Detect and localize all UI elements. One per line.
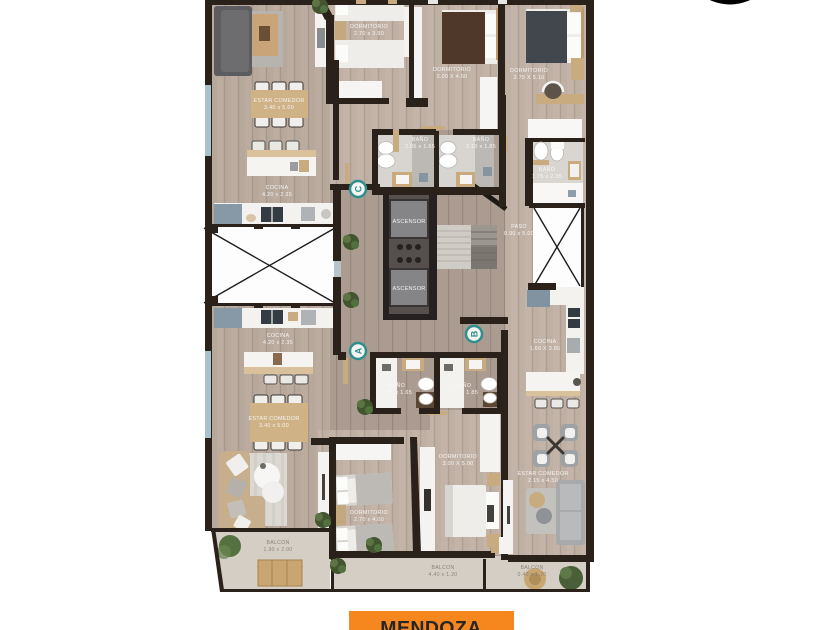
svg-text:BAÑO: BAÑO: [412, 136, 428, 143]
svg-text:1.75 x 2.35: 1.75 x 2.35: [532, 174, 562, 180]
svg-text:4.20 x 2.35: 4.20 x 2.35: [263, 340, 293, 346]
svg-text:BALCON: BALCON: [266, 540, 289, 546]
svg-text:DORMITORIO: DORMITORIO: [350, 510, 388, 516]
svg-text:ESTAR COMEDOR: ESTAR COMEDOR: [253, 98, 304, 104]
svg-text:B: B: [470, 330, 480, 337]
svg-text:ASCENSOR: ASCENSOR: [393, 286, 426, 292]
svg-text:0.90 x 5.00: 0.90 x 5.00: [504, 231, 534, 237]
svg-text:C: C: [354, 185, 364, 192]
svg-text:4.20 x 2.35: 4.20 x 2.35: [262, 192, 292, 198]
svg-text:COCINA: COCINA: [534, 339, 557, 345]
svg-text:DORMITORIO: DORMITORIO: [510, 68, 548, 74]
svg-text:BAÑO: BAÑO: [539, 166, 555, 173]
svg-text:2.70 x 3.90: 2.70 x 3.90: [354, 31, 384, 37]
svg-text:DORMITORIO: DORMITORIO: [350, 24, 388, 30]
svg-text:ESTAR COMEDOR: ESTAR COMEDOR: [517, 471, 568, 477]
svg-text:ASCENSOR: ASCENSOR: [393, 219, 426, 225]
svg-text:4.40 x 1.20: 4.40 x 1.20: [429, 572, 458, 578]
svg-text:3.00 X 4.60: 3.00 X 4.60: [437, 74, 468, 80]
svg-text:1.90 x 2.00: 1.90 x 2.00: [264, 547, 293, 553]
svg-text:MENDOZA: MENDOZA: [380, 618, 481, 630]
svg-text:0.40 x 1.20: 0.40 x 1.20: [518, 572, 547, 578]
svg-text:BALCON: BALCON: [520, 565, 543, 571]
svg-text:ESTAR COMEDOR: ESTAR COMEDOR: [248, 416, 299, 422]
svg-text:BALCON: BALCON: [431, 565, 454, 571]
svg-text:3.40 x 5.00: 3.40 x 5.00: [264, 105, 294, 111]
svg-text:2.75 X 5.10: 2.75 X 5.10: [514, 75, 545, 81]
svg-text:1.60 X 3.85: 1.60 X 3.85: [530, 346, 561, 352]
svg-text:3.40 x 5.00: 3.40 x 5.00: [259, 423, 289, 429]
svg-text:2.05 x 1.65: 2.05 x 1.65: [382, 390, 412, 396]
svg-text:2.05 x 1.65: 2.05 x 1.65: [405, 144, 435, 150]
svg-text:BAÑO: BAÑO: [455, 382, 471, 389]
svg-text:COCINA: COCINA: [266, 185, 289, 191]
svg-text:BAÑO: BAÑO: [389, 382, 405, 389]
svg-text:COCINA: COCINA: [267, 333, 290, 339]
svg-text:2.10 x 1.85: 2.10 x 1.85: [466, 144, 496, 150]
svg-text:BAÑO: BAÑO: [473, 136, 489, 143]
svg-text:2.15 x 4.50: 2.15 x 4.50: [528, 478, 558, 484]
svg-text:3.00 X 5.00: 3.00 X 5.00: [443, 461, 474, 467]
svg-text:2.70 x 4.00: 2.70 x 4.00: [354, 517, 384, 523]
svg-text:A: A: [354, 347, 364, 354]
svg-text:DORMITORIO: DORMITORIO: [439, 454, 477, 460]
svg-text:2.10 x 1.85: 2.10 x 1.85: [448, 390, 478, 396]
svg-text:PASO: PASO: [511, 224, 527, 230]
svg-text:DORMITORIO: DORMITORIO: [433, 67, 471, 73]
